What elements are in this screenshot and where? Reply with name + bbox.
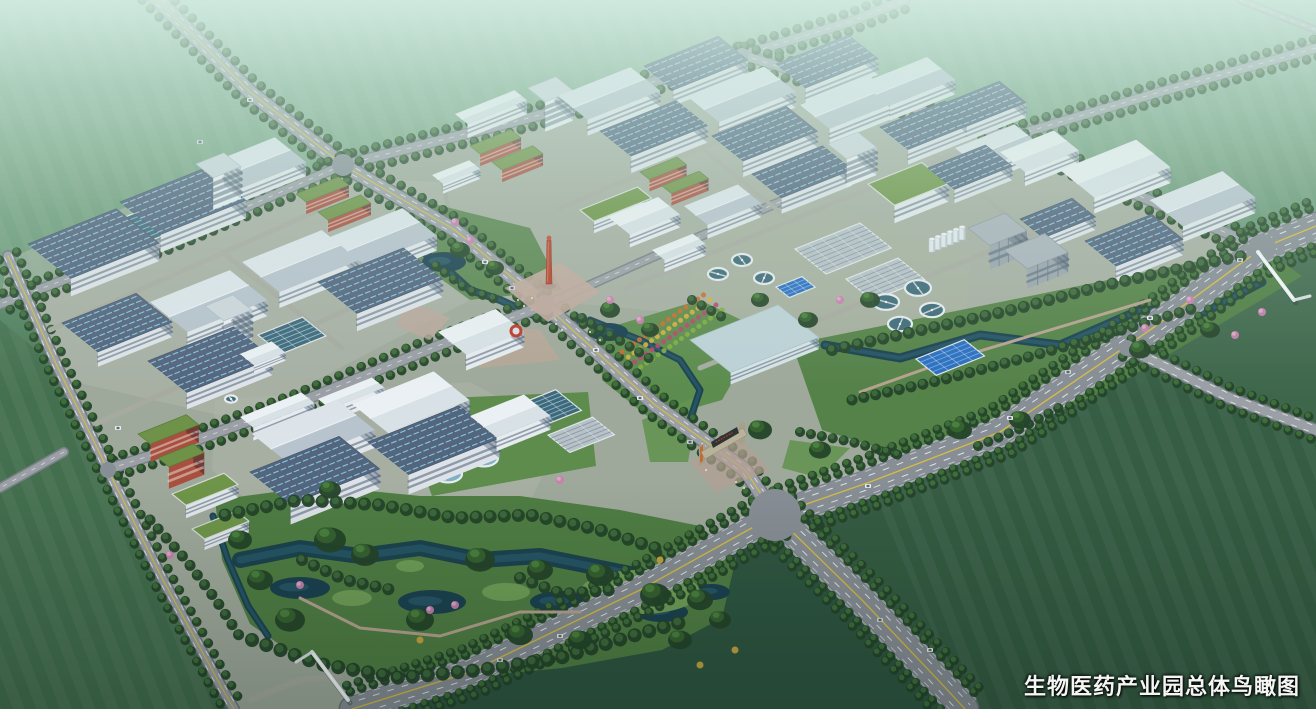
rendering-canvas [0,0,1316,709]
caption: 生物医药产业园总体鸟瞰图 [1024,669,1300,701]
atmosphere-haze [0,0,1316,709]
aerial-rendering-biomedical-park: 生物医药产业园总体鸟瞰图 [0,0,1316,709]
